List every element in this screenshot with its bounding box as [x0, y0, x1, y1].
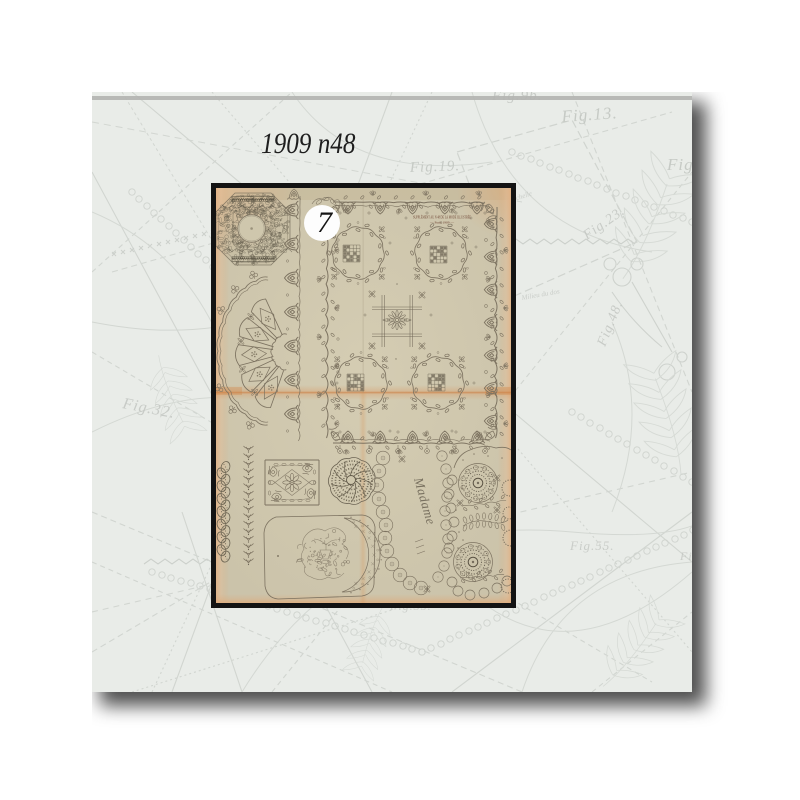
svg-text:Fig.55.: Fig.55.: [569, 538, 615, 553]
svg-text:Fig.19.: Fig.19.: [409, 158, 461, 176]
svg-text:— Paris 1909 —: — Paris 1909 —: [429, 221, 455, 225]
svg-text:Fig.5.: Fig.5.: [679, 549, 692, 563]
svg-text:7: 7: [317, 206, 334, 239]
svg-text:Fig.48.: Fig.48.: [594, 299, 626, 350]
svg-text:Fig.23.: Fig.23.: [580, 204, 628, 244]
svg-text:Milieu du dos: Milieu du dos: [520, 287, 561, 302]
svg-text:o: o: [396, 282, 398, 286]
svg-text:SUPPLÉMENT AU N 48 DE LA MODE: SUPPLÉMENT AU N 48 DE LA MODE ILLUSTRÉE: [413, 215, 471, 220]
svg-text:Fig.11.: Fig.11.: [666, 155, 692, 174]
svg-text:Fig.13.: Fig.13.: [560, 103, 618, 126]
svg-text:n: n: [395, 357, 397, 361]
